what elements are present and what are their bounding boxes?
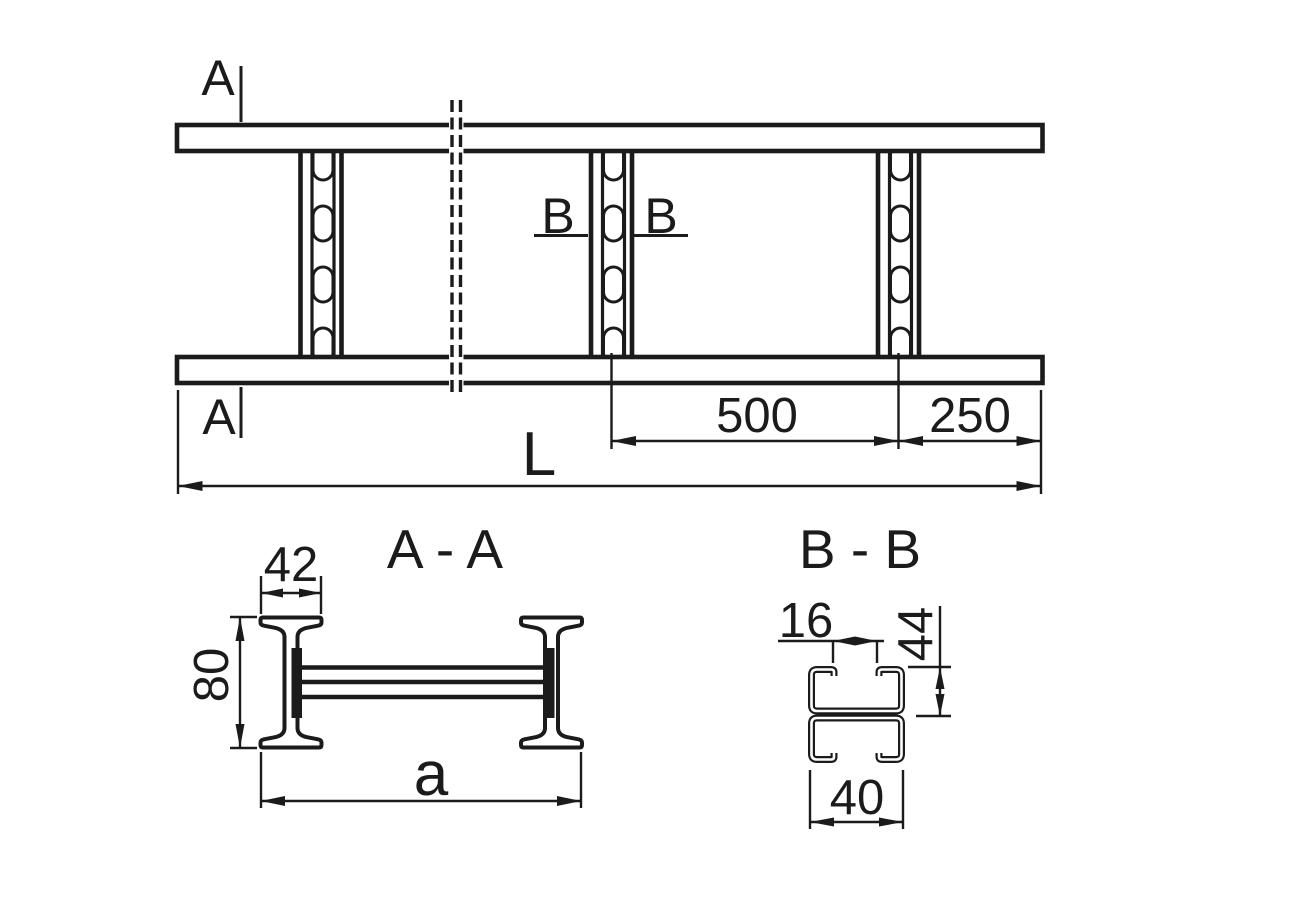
dim-a-label: a bbox=[414, 740, 449, 809]
cut-label-a-bottom: A bbox=[202, 389, 236, 445]
arrow-top bbox=[236, 617, 245, 641]
dim-80: 80 bbox=[185, 617, 257, 748]
arrow-left bbox=[261, 796, 285, 806]
channel-top-outer bbox=[812, 670, 902, 712]
arrow-right bbox=[874, 436, 899, 446]
cut-label-a-top: A bbox=[201, 50, 235, 106]
rung-profile bbox=[812, 670, 902, 760]
section-bb-title: B - B bbox=[799, 518, 921, 580]
rung-2 bbox=[591, 140, 632, 370]
rung-3 bbox=[878, 140, 919, 370]
arrow-left bbox=[612, 436, 637, 446]
rung-side-view bbox=[300, 668, 546, 698]
dim-80-label: 80 bbox=[185, 648, 239, 703]
weld-left bbox=[292, 648, 303, 718]
section-aa-title: A - A bbox=[387, 518, 503, 580]
arrow-right bbox=[1017, 436, 1042, 446]
dim-40-label: 40 bbox=[830, 771, 885, 825]
arrow-bottom bbox=[236, 724, 245, 748]
dim-250: 250 bbox=[899, 389, 1042, 494]
arrow-right bbox=[1017, 481, 1042, 491]
cut-label-b-left: B bbox=[541, 188, 574, 244]
dim-length-label: L bbox=[522, 420, 556, 489]
dim-a: a bbox=[261, 740, 581, 809]
dim-40: 40 bbox=[810, 770, 903, 829]
arrow-top bbox=[936, 667, 945, 689]
weld-right bbox=[544, 648, 555, 718]
section-aa: A - A 42 80 bbox=[185, 518, 582, 809]
arrow-left bbox=[178, 481, 203, 491]
arrow-left bbox=[899, 436, 924, 446]
cut-label-b-right: B bbox=[644, 188, 677, 244]
cable-ladder-drawing: A A B B 500 250 bbox=[0, 0, 1290, 912]
bottom-rail bbox=[177, 357, 1043, 383]
section-bb: B - B 16 44 bbox=[778, 518, 951, 829]
rung-1 bbox=[301, 140, 342, 370]
dim-42: 42 bbox=[261, 538, 321, 614]
arrow-left bbox=[833, 637, 855, 646]
channel-bottom-core bbox=[812, 718, 902, 760]
dim-42-label: 42 bbox=[264, 538, 319, 592]
technical-drawing: A A B B 500 250 bbox=[0, 0, 1290, 912]
dim-250-label: 250 bbox=[929, 389, 1011, 443]
dim-16: 16 bbox=[778, 594, 884, 663]
break-lines bbox=[449, 100, 464, 392]
dim-44-label: 44 bbox=[889, 607, 943, 662]
dim-16-label: 16 bbox=[779, 594, 834, 648]
arrow-right bbox=[557, 796, 581, 806]
section-cut-a: A A bbox=[201, 50, 241, 445]
arrow-bottom bbox=[936, 694, 945, 716]
top-rail bbox=[177, 125, 1043, 151]
channel-bottom-outer bbox=[812, 718, 902, 760]
top-view: A A B B 500 250 bbox=[177, 50, 1043, 494]
channel-top-core bbox=[812, 670, 902, 712]
arrow-right bbox=[855, 637, 877, 646]
dim-500-label: 500 bbox=[716, 389, 798, 443]
